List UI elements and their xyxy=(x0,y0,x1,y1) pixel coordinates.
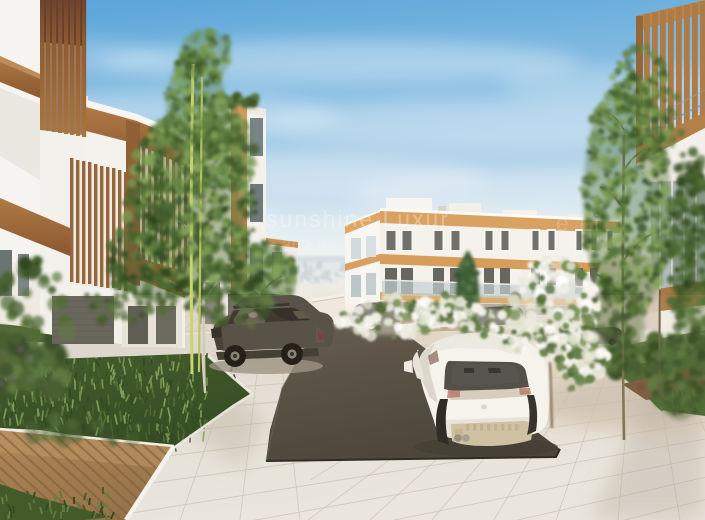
svg-text:e Li: e Li xyxy=(556,210,601,236)
svg-text:302 na: 302 na xyxy=(282,238,337,255)
svg-text:sunshine Luxur: sunshine Luxur xyxy=(266,206,450,232)
